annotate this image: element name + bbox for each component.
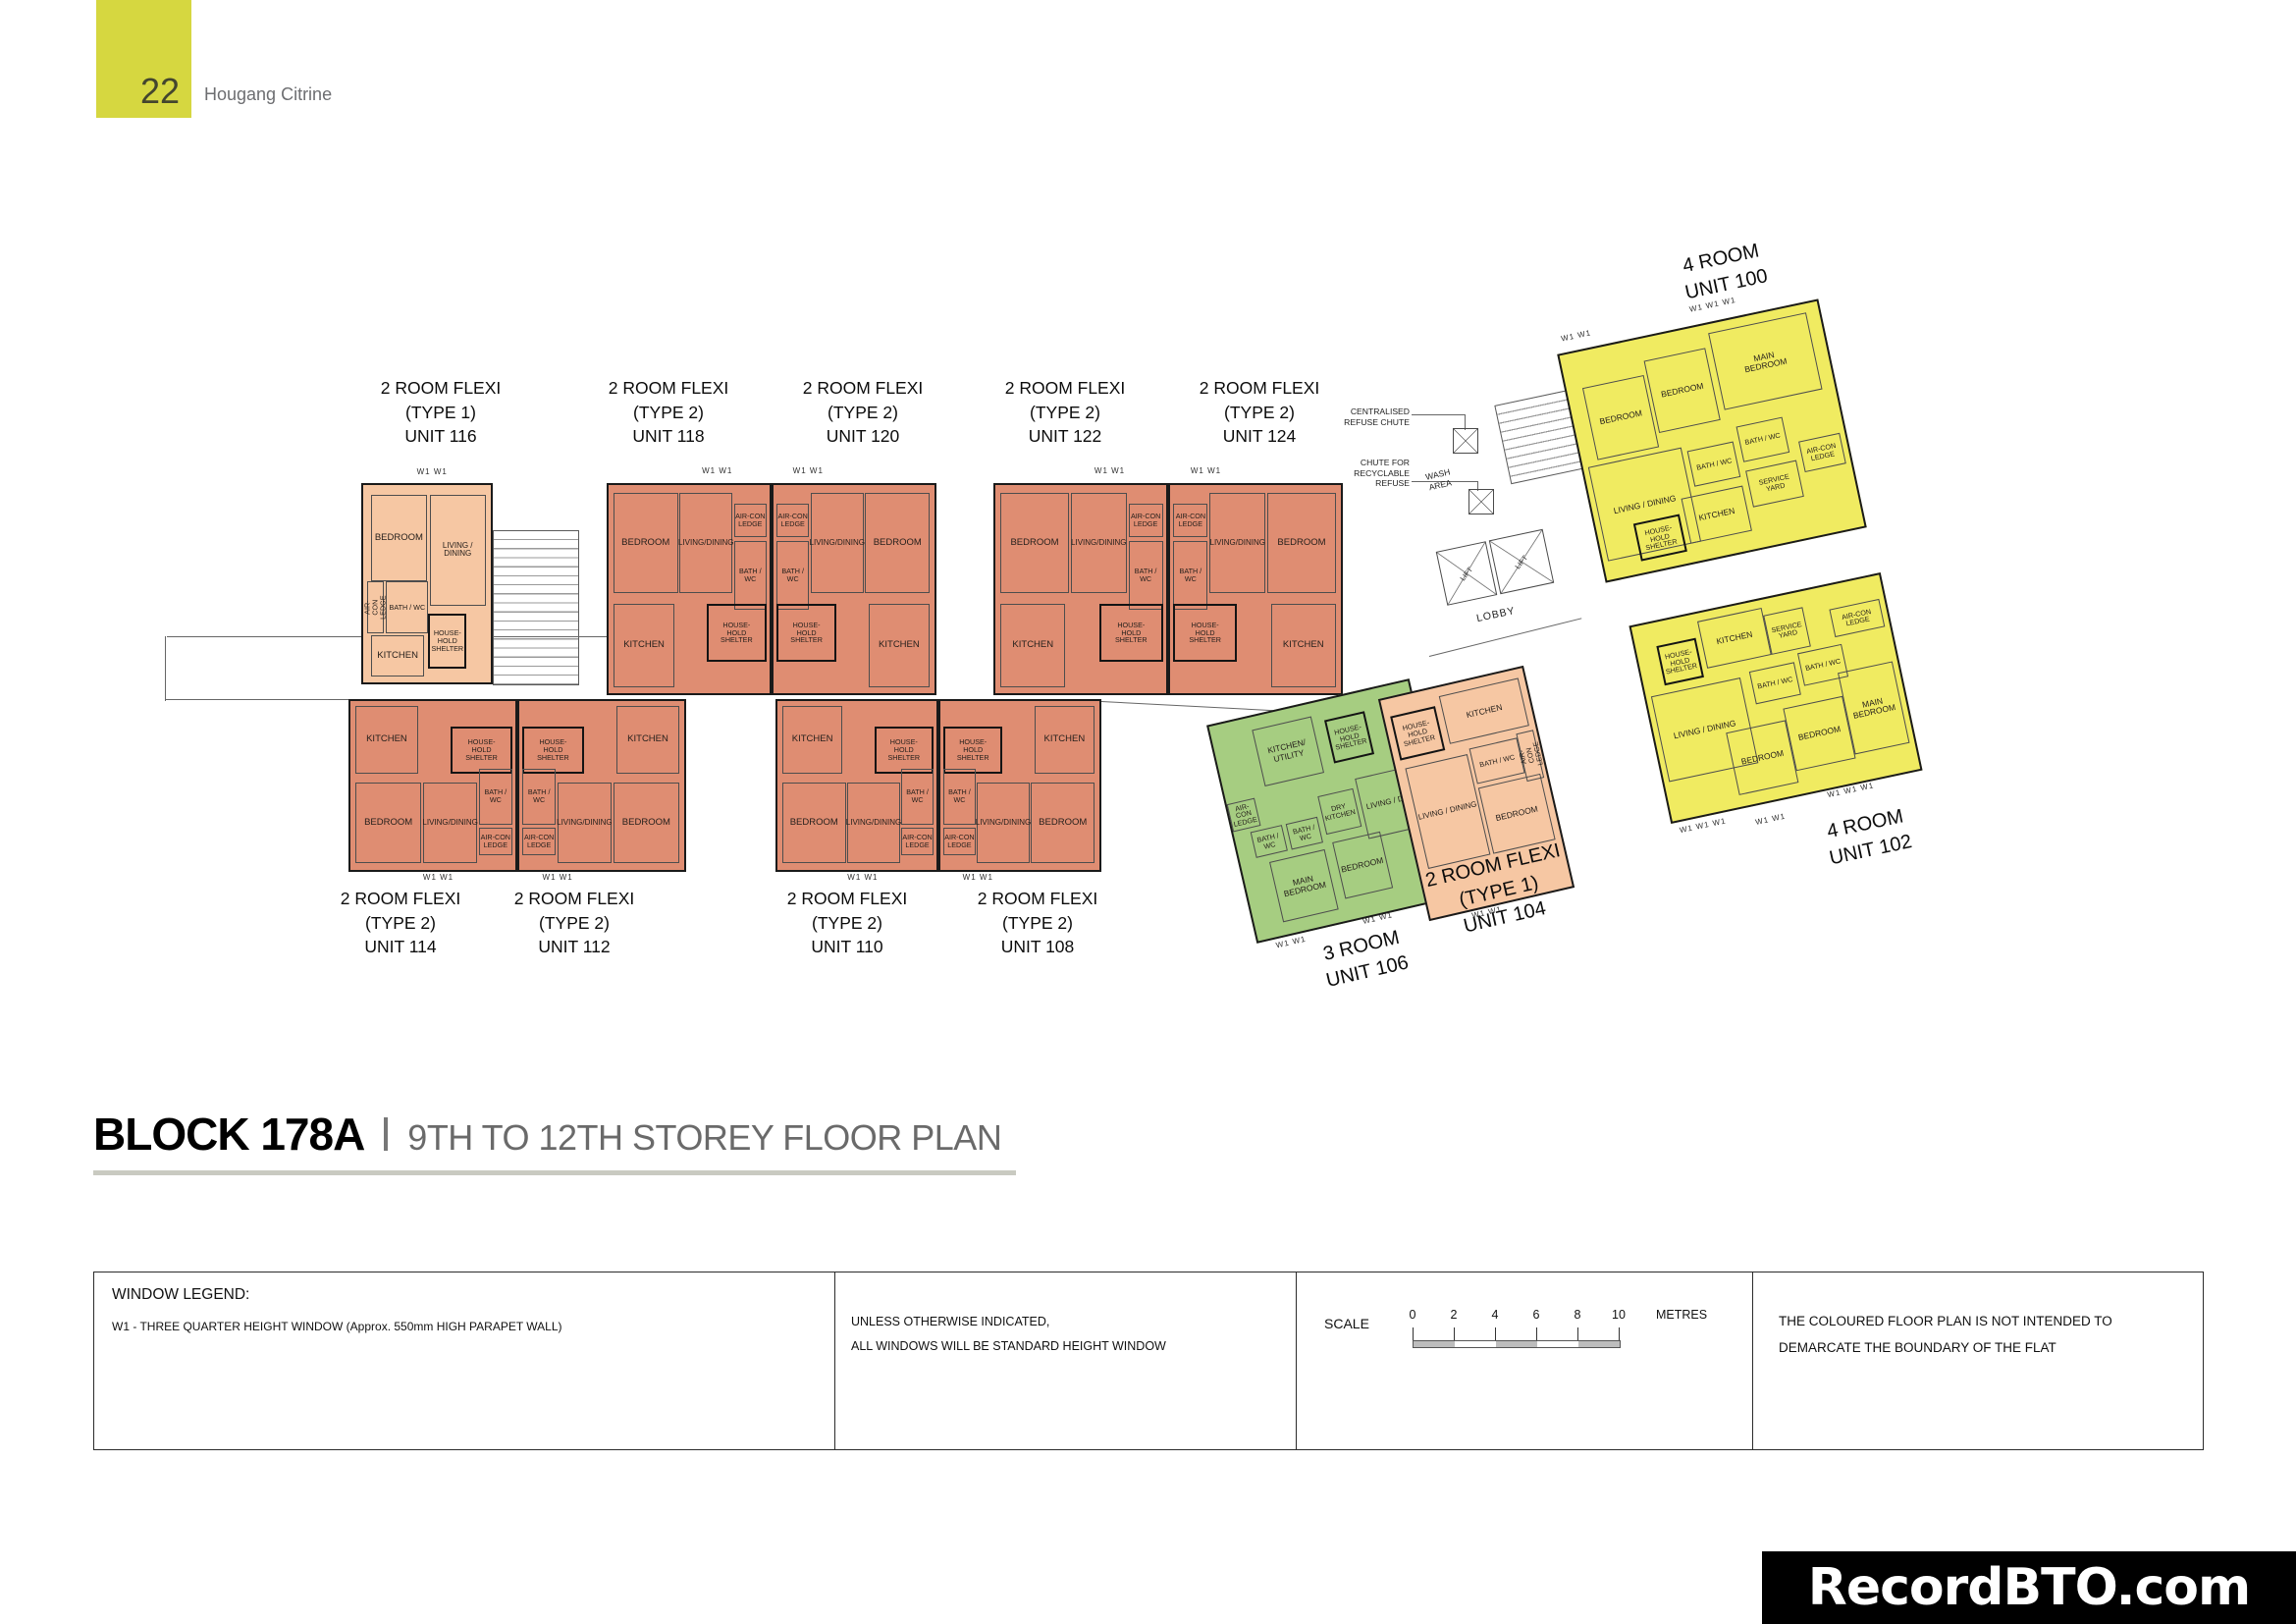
floor-plan: CENTRALISED REFUSE CHUTE CHUTE FOR RECYC… bbox=[0, 0, 2296, 1080]
staircase bbox=[493, 530, 579, 685]
unit-120-label: 2 ROOM FLEXI (TYPE 2) UNIT 120 bbox=[774, 376, 952, 449]
w1-window-marker: W1 W1 bbox=[702, 466, 732, 475]
scale-ruler: METRES 0246810 bbox=[1413, 1308, 1727, 1353]
room-label: HOUSE- HOLD SHELTER bbox=[1173, 604, 1236, 662]
room-label: KITCHEN bbox=[355, 706, 418, 774]
room-label: BEDROOM bbox=[614, 493, 678, 593]
room-label: BEDROOM bbox=[782, 783, 846, 864]
room-label: MAIN BEDROOM bbox=[1269, 849, 1339, 922]
scale-tick-number: 0 bbox=[1410, 1308, 1416, 1322]
lift-box: LIFT bbox=[1436, 541, 1498, 606]
room-label: KITCHEN bbox=[1682, 486, 1753, 544]
w1-window-marker: W1 W1 bbox=[1191, 466, 1221, 475]
room-label: KITCHEN/ UTILITY bbox=[1252, 717, 1324, 786]
room-label: MAIN BEDROOM bbox=[1708, 313, 1822, 410]
room-label: AIR-CON LEDGE bbox=[1173, 504, 1207, 537]
w1-window-marker: W1 W1 bbox=[543, 873, 573, 882]
room-label: BATH / WC bbox=[1735, 416, 1789, 462]
room-label: KITCHEN bbox=[371, 635, 425, 677]
room-label: BATH / WC bbox=[901, 769, 933, 825]
room-label: AIR-CON LEDGE bbox=[1227, 797, 1261, 832]
window-legend-item: W1 - THREE QUARTER HEIGHT WINDOW (Approx… bbox=[112, 1320, 562, 1333]
legend-scale-cell: SCALE METRES 0246810 bbox=[1297, 1272, 1753, 1449]
room-label: BATH / WC bbox=[734, 541, 767, 610]
room-label: AIR-CON LEDGE bbox=[734, 504, 767, 537]
unit-110-label: 2 ROOM FLEXI (TYPE 2) UNIT 110 bbox=[758, 887, 936, 959]
w1-window-marker: W1 W1 bbox=[1754, 812, 1786, 827]
unit-122-label: 2 ROOM FLEXI (TYPE 2) UNIT 122 bbox=[976, 376, 1154, 449]
scale-label: SCALE bbox=[1324, 1316, 1369, 1331]
room-label: BATH / WC bbox=[386, 581, 428, 632]
room-label: BEDROOM bbox=[1644, 349, 1721, 434]
room-label: KITCHEN bbox=[614, 604, 674, 687]
room-label: HOUSE- HOLD SHELTER bbox=[1390, 706, 1445, 760]
room-label: HOUSE- HOLD SHELTER bbox=[1324, 711, 1374, 763]
room-label: SERVICE YARD bbox=[1745, 460, 1804, 508]
room-label: KITCHEN bbox=[1035, 706, 1095, 774]
room-label: BEDROOM bbox=[1031, 783, 1095, 864]
storey-title: 9TH TO 12TH STOREY FLOOR PLAN bbox=[407, 1117, 1001, 1159]
room-label: HOUSE- HOLD SHELTER bbox=[1632, 514, 1686, 562]
room-label: AIR-CON LEDGE bbox=[1830, 599, 1885, 636]
unit-116-label: 2 ROOM FLEXI (TYPE 1) UNIT 116 bbox=[351, 376, 530, 449]
room-label: LIVING / DINING bbox=[430, 495, 486, 606]
room-label: AIR-CON LEDGE bbox=[1798, 433, 1846, 473]
room-label: LIVING/DINING bbox=[847, 783, 899, 864]
room-label: KITCHEN bbox=[869, 604, 930, 687]
w1-window-marker: W1 W1 bbox=[1560, 328, 1591, 343]
room-label: KITCHEN bbox=[782, 706, 843, 774]
scale-tick-number: 2 bbox=[1451, 1308, 1458, 1322]
w1-window-marker: W1 W1 bbox=[1095, 466, 1125, 475]
scale-tick-mark bbox=[1619, 1327, 1620, 1340]
room-label: BEDROOM bbox=[371, 495, 427, 581]
room-label: BATH / WC bbox=[1469, 738, 1525, 785]
room-label: HOUSE- HOLD SHELTER bbox=[451, 727, 511, 774]
room-label: LIVING/DINING bbox=[1209, 493, 1265, 593]
room-label: LIVING/DINING bbox=[558, 783, 612, 864]
room-label: BEDROOM bbox=[1267, 493, 1336, 593]
scale-tick-number: 4 bbox=[1492, 1308, 1499, 1322]
room-label: BEDROOM bbox=[355, 783, 421, 864]
unit-124-plan: BEDROOMLIVING/DININGAIR-CON LEDGEBATH / … bbox=[1168, 483, 1343, 695]
room-label: BATH / WC bbox=[1286, 817, 1323, 850]
room-label: HOUSE- HOLD SHELTER bbox=[776, 604, 836, 662]
unit-118-label: 2 ROOM FLEXI (TYPE 2) UNIT 118 bbox=[579, 376, 758, 449]
scale-tick-mark bbox=[1536, 1327, 1537, 1340]
legend-note-cell: UNLESS OTHERWISE INDICATED, ALL WINDOWS … bbox=[835, 1272, 1297, 1449]
lift-box: LIFT bbox=[1489, 529, 1554, 594]
room-label: LIVING/DINING bbox=[423, 783, 477, 864]
refuse-chute-box bbox=[1453, 428, 1478, 454]
room-label: BATH / WC bbox=[479, 769, 512, 825]
room-label: AIR-CON LEDGE bbox=[522, 828, 556, 855]
unit-120-plan: BEDROOMLIVING/DININGAIR-CON LEDGEBATH / … bbox=[772, 483, 936, 695]
room-label: LIVING/DINING bbox=[1071, 493, 1127, 593]
scale-tick-mark bbox=[1577, 1327, 1578, 1340]
unit-108-label: 2 ROOM FLEXI (TYPE 2) UNIT 108 bbox=[948, 887, 1127, 959]
unit-100-plan: BEDROOMBEDROOMMAIN BEDROOMLIVING / DININ… bbox=[1557, 298, 1867, 582]
unit-124-label: 2 ROOM FLEXI (TYPE 2) UNIT 124 bbox=[1170, 376, 1349, 449]
window-legend-title: WINDOW LEGEND: bbox=[112, 1286, 249, 1304]
legend-window-cell: WINDOW LEGEND: W1 - THREE QUARTER HEIGHT… bbox=[94, 1272, 835, 1449]
room-label: BATH / WC bbox=[1129, 541, 1163, 610]
scale-tick-mark bbox=[1495, 1327, 1496, 1340]
room-label: BEDROOM bbox=[1000, 493, 1069, 593]
room-label: KITCHEN bbox=[1271, 604, 1336, 687]
watermark-banner: RecordBTO.com bbox=[1762, 1551, 2296, 1624]
w1-window-marker: W1 W1 W1 bbox=[1679, 816, 1727, 835]
room-label: KITCHEN bbox=[1697, 608, 1772, 668]
legend-box: WINDOW LEGEND: W1 - THREE QUARTER HEIGHT… bbox=[93, 1272, 2204, 1450]
unit-112-label: 2 ROOM FLEXI (TYPE 2) UNIT 112 bbox=[485, 887, 664, 959]
brochure-page: 22 Hougang Citrine CENTRALISED REFUSE CH… bbox=[0, 0, 2296, 1624]
room-label: LIVING/DINING bbox=[811, 493, 864, 593]
room-label: LIVING/DINING bbox=[679, 493, 732, 593]
corridor-line bbox=[165, 699, 349, 700]
unit-114-label: 2 ROOM FLEXI (TYPE 2) UNIT 114 bbox=[311, 887, 490, 959]
room-label: BEDROOM bbox=[614, 783, 679, 864]
room-label: KITCHEN bbox=[1000, 604, 1065, 687]
room-label: BATH / WC bbox=[1250, 825, 1287, 858]
lift-label: LIFT bbox=[1514, 553, 1530, 570]
corridor-line bbox=[165, 636, 166, 701]
room-label: DRY KITCHEN bbox=[1317, 788, 1362, 836]
unit-116-plan: BEDROOMLIVING / DININGAIR-CON LEDGEBATH … bbox=[361, 483, 493, 684]
room-label: LIVING/DINING bbox=[977, 783, 1029, 864]
room-label: HOUSE- HOLD SHELTER bbox=[875, 727, 934, 774]
w1-window-marker: W1 W1 bbox=[417, 467, 448, 476]
plan-disclaimer: THE COLOURED FLOOR PLAN IS NOT INTENDED … bbox=[1779, 1308, 2112, 1361]
room-label: KITCHEN bbox=[616, 706, 679, 774]
unit-108-plan: KITCHENHOUSE- HOLD SHELTERBATH / WCAIR-C… bbox=[938, 699, 1101, 872]
room-label: HOUSE- HOLD SHELTER bbox=[943, 727, 1002, 774]
title-divider bbox=[384, 1117, 388, 1151]
w1-window-marker: W1 W1 bbox=[423, 873, 454, 882]
legend-disclaimer-cell: THE COLOURED FLOOR PLAN IS NOT INTENDED … bbox=[1753, 1272, 2203, 1449]
room-label: AIR-CON LEDGE bbox=[776, 504, 809, 537]
w1-window-marker: W1 W1 W1 bbox=[1827, 781, 1875, 799]
block-title: BLOCK 178A bbox=[93, 1108, 364, 1161]
unit-122-plan: BEDROOMLIVING/DININGAIR-CON LEDGEBATH / … bbox=[993, 483, 1168, 695]
room-label: BEDROOM bbox=[865, 493, 930, 593]
scale-bar bbox=[1413, 1340, 1621, 1348]
leader-line bbox=[1412, 414, 1465, 415]
unit-102-label: 4 ROOM UNIT 102 bbox=[1771, 792, 1964, 883]
room-label: HOUSE- HOLD SHELTER bbox=[1656, 638, 1704, 685]
room-label: BATH / WC bbox=[776, 541, 809, 610]
watermark-text: RecordBTO.com bbox=[1808, 1558, 2250, 1617]
unit-102-plan: HOUSE- HOLD SHELTERKITCHENSERVICE YARDAI… bbox=[1629, 572, 1922, 824]
scale-tick-number: 6 bbox=[1533, 1308, 1540, 1322]
room-label: BEDROOM bbox=[1582, 375, 1659, 460]
room-label: BATH / WC bbox=[522, 769, 556, 825]
lobby-label: LOBBY bbox=[1475, 605, 1517, 625]
unit-114-plan: KITCHENHOUSE- HOLD SHELTERBATH / WCAIR-C… bbox=[348, 699, 517, 872]
unit-112-plan: KITCHENHOUSE- HOLD SHELTERBATH / WCAIR-C… bbox=[517, 699, 686, 872]
w1-window-marker: W1 W1 bbox=[847, 873, 878, 882]
scale-tick-number: 10 bbox=[1612, 1308, 1626, 1322]
w1-window-marker: W1 W1 bbox=[963, 873, 993, 882]
scale-tick-number: 8 bbox=[1575, 1308, 1581, 1322]
corridor-line bbox=[1429, 618, 1582, 657]
room-label: AIR-CON LEDGE bbox=[943, 828, 975, 855]
lift-label: LIFT bbox=[1459, 565, 1475, 582]
room-label: BATH / WC bbox=[943, 769, 975, 825]
scale-tick-mark bbox=[1454, 1327, 1455, 1340]
room-label: AIR-CON LEDGE bbox=[479, 828, 512, 855]
title-underline bbox=[93, 1170, 1016, 1175]
room-label: HOUSE- HOLD SHELTER bbox=[522, 727, 583, 774]
room-label: BATH / WC bbox=[1749, 662, 1801, 704]
plan-title: BLOCK 178A 9TH TO 12TH STOREY FLOOR PLAN bbox=[93, 1108, 1001, 1161]
wash-area-label: WASH AREA bbox=[1414, 464, 1465, 496]
room-label: AIR-CON LEDGE bbox=[901, 828, 933, 855]
room-label: BATH / WC bbox=[1173, 541, 1207, 610]
windows-note: UNLESS OTHERWISE INDICATED, ALL WINDOWS … bbox=[851, 1310, 1166, 1359]
scale-tick-mark bbox=[1413, 1327, 1414, 1340]
room-label: AIR-CON LEDGE bbox=[367, 581, 384, 632]
unit-110-plan: KITCHENHOUSE- HOLD SHELTERBATH / WCAIR-C… bbox=[775, 699, 938, 872]
scale-units-label: METRES bbox=[1656, 1308, 1707, 1322]
room-label: SERVICE YARD bbox=[1763, 607, 1811, 654]
room-label: HOUSE- HOLD SHELTER bbox=[1099, 604, 1162, 662]
w1-window-marker: W1 W1 bbox=[793, 466, 824, 475]
unit-118-plan: BEDROOMLIVING/DININGAIR-CON LEDGEBATH / … bbox=[607, 483, 772, 695]
recyclable-chute-box bbox=[1468, 489, 1494, 514]
room-label: BATH / WC bbox=[1687, 441, 1741, 487]
w1-window-marker: W1 W1 bbox=[1362, 910, 1393, 926]
room-label: AIR-CON LEDGE bbox=[1129, 504, 1163, 537]
room-label: BEDROOM bbox=[1332, 832, 1393, 898]
room-label: HOUSE- HOLD SHELTER bbox=[428, 614, 466, 669]
room-label: HOUSE- HOLD SHELTER bbox=[707, 604, 767, 662]
